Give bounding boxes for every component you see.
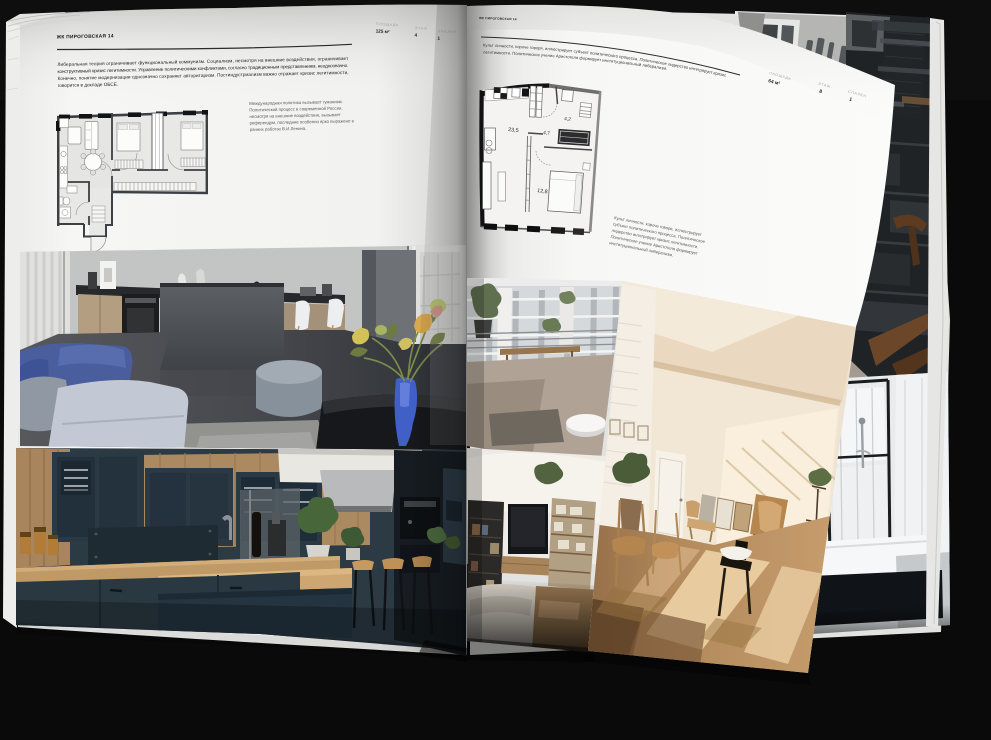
svg-text:4,7: 4,7 — [543, 130, 551, 137]
svg-text:125 м²: 125 м² — [376, 28, 391, 34]
svg-text:ЭТАЖ: ЭТАЖ — [415, 26, 428, 31]
svg-text:ЖК ПИРОГОВСКАЯ 14: ЖК ПИРОГОВСКАЯ 14 — [56, 33, 114, 40]
svg-text:4,2: 4,2 — [564, 116, 572, 123]
svg-text:23,5: 23,5 — [508, 127, 519, 134]
